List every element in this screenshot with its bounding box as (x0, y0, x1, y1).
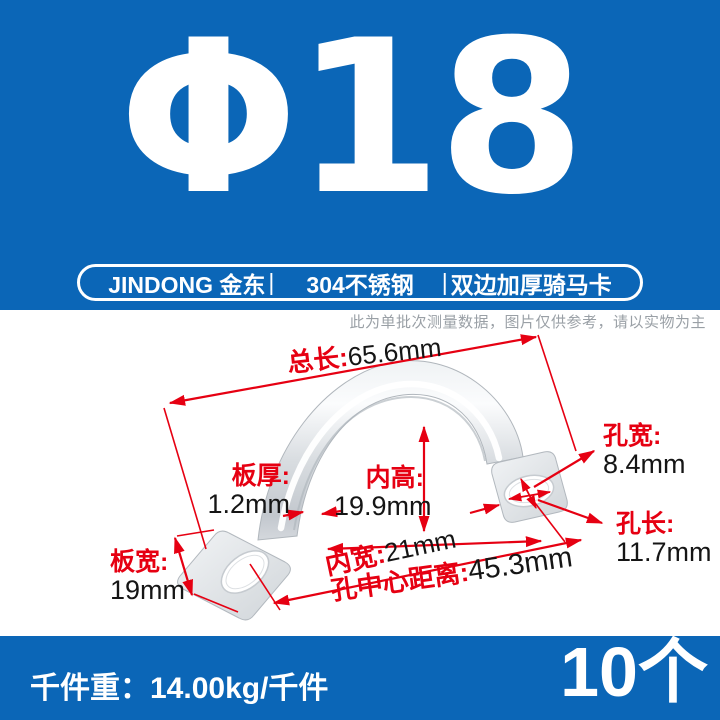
dim-plate-width-value: 19mm (110, 576, 185, 605)
dim-total-length-label: 总长: (286, 342, 349, 378)
right-foot-hole (501, 471, 556, 511)
hole-width-pointer (534, 451, 594, 487)
dim-total-length: 总长:65.6mm (286, 333, 443, 377)
dim-plate-thickness: 板厚: 1.2mm (198, 463, 290, 519)
bottom-banner: 千件重：14.00kg/千件 10个 (0, 636, 720, 720)
weight-value: 14.00kg/千件 (150, 672, 328, 705)
left-hole-ext-line (250, 564, 280, 610)
dim-hole-length-value: 11.7mm (616, 538, 712, 567)
left-foot-hole-edge (220, 549, 270, 596)
dim-plate-thickness-label: 板厚: (198, 463, 290, 490)
material-label: 304不锈钢 (306, 266, 413, 300)
inner-span-arrow-right (470, 505, 499, 513)
dim-plate-width: 板宽: 19mm (110, 549, 185, 605)
dim-hole-center-distance-value: 45.3mm (466, 541, 574, 587)
pill-separator: | (268, 269, 274, 296)
product-type-label: 双边加厚骑马卡 (451, 266, 612, 300)
quantity-label: 10个 (560, 630, 708, 714)
plate-width-ext-top (177, 530, 214, 536)
hole-length-pointer (538, 500, 602, 523)
left-foot-hole (214, 542, 277, 601)
dim-hole-length-label: 孔长: (616, 511, 712, 538)
dim-hole-width-label: 孔宽: (603, 423, 686, 450)
brand-name: JINDONG 金东 (108, 266, 265, 300)
dim-inner-height-value: 19.9mm (334, 492, 424, 521)
hole-width-arrow (521, 479, 536, 508)
diameter-label: Φ18 (0, 2, 700, 234)
pill-separator: | (442, 269, 448, 296)
dim-plate-thickness-value: 1.2mm (198, 490, 290, 519)
brand-pill: JINDONG 金东 | 304不锈钢 | 双边加厚骑马卡 (77, 264, 643, 301)
dim-hole-length: 孔长: 11.7mm (616, 511, 712, 567)
dim-inner-height: 内高: 19.9mm (334, 465, 424, 521)
weight-text: 千件重：14.00kg/千件 (30, 663, 328, 707)
right-foot-hole-edge (507, 476, 551, 506)
weight-label: 千件重： (30, 672, 150, 705)
product-card: Φ18 JINDONG 金东 | 304不锈钢 | 双边加厚骑马卡 此为单批次测… (0, 0, 720, 720)
dim-plate-width-label: 板宽: (110, 549, 185, 576)
clamp-right-foot (492, 452, 568, 523)
top-banner: Φ18 JINDONG 金东 | 304不锈钢 | 双边加厚骑马卡 (0, 0, 720, 310)
clamp-left-foot (178, 531, 291, 620)
dim-hole-width: 孔宽: 8.4mm (603, 423, 686, 479)
right-hole-ext-line (532, 499, 565, 542)
dim-hole-width-value: 8.4mm (603, 450, 686, 479)
hole-length-arrow (509, 492, 550, 499)
total-length-ext-right (538, 335, 576, 451)
disclaimer-text: 此为单批次测量数据，图片仅供参考，请以实物为主 (349, 311, 706, 332)
dim-inner-height-label: 内高: (334, 465, 424, 492)
plate-width-ext-bottom (194, 594, 238, 612)
dim-total-length-value: 65.6mm (346, 332, 443, 372)
